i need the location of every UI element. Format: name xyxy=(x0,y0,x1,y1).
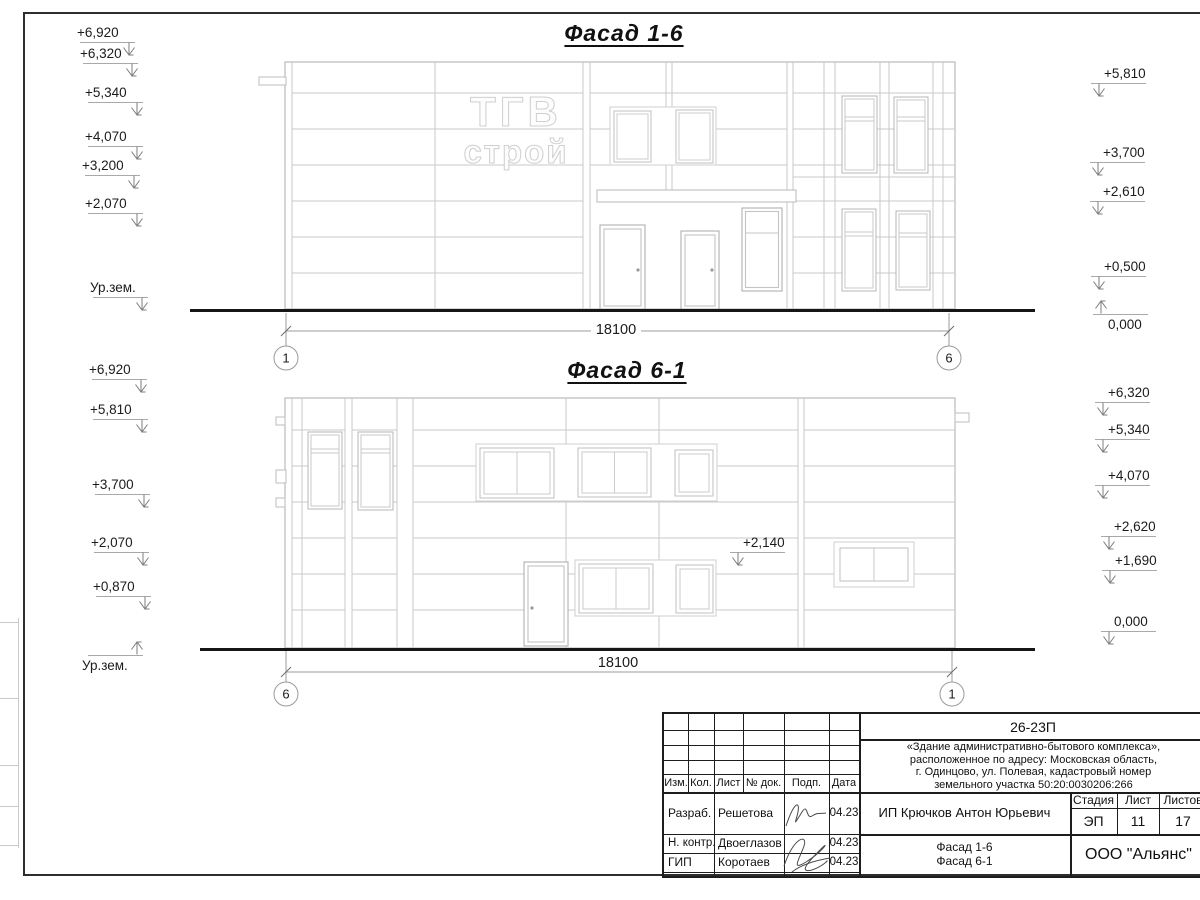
axis-label-right: 1 xyxy=(948,687,955,702)
elevation-leader xyxy=(88,655,143,656)
dimension-label: 18100 xyxy=(598,655,638,671)
axis-label-left: 1 xyxy=(282,351,289,366)
elevation-value: +3,200 xyxy=(82,158,124,173)
elevation-value: Ур.зем. xyxy=(90,280,136,295)
facade-6-1-title: Фасад 6-1 xyxy=(497,357,757,384)
signature-scribble xyxy=(778,832,836,876)
elevation-value: +3,700 xyxy=(1103,145,1145,160)
sign-line-2: строй xyxy=(463,133,568,170)
elevation-value: +5,810 xyxy=(90,402,132,417)
project-description: «Здание административно-бытового комплек… xyxy=(862,741,1200,791)
sign-line-1: ТГВ xyxy=(470,88,562,135)
elevation-value: +2,140 xyxy=(743,535,785,550)
client-name: ИП Крючков Антон Юрьевич xyxy=(859,792,1070,834)
small-window xyxy=(834,542,914,587)
elevation-value: +1,690 xyxy=(1115,553,1157,568)
elevation-value: +6,920 xyxy=(89,362,131,377)
elevation-value: +4,070 xyxy=(85,129,127,144)
drawing-sheet: Фасад 1-6 xyxy=(0,0,1200,900)
elevation-value: +5,810 xyxy=(1104,66,1146,81)
description-line: г. Одинцово, ул. Полевая, кадастровый но… xyxy=(862,766,1200,779)
axis-label-left: 6 xyxy=(282,687,289,702)
elevation-value: +5,340 xyxy=(1108,422,1150,437)
row-role: ГИП xyxy=(668,853,714,872)
sheet-content: Фасад 1-6 Фасад 6-1 xyxy=(859,840,1070,868)
facade-1-6-title: Фасад 1-6 xyxy=(494,20,754,47)
signature-scribble xyxy=(782,794,832,834)
sheet-label: Лист xyxy=(1117,793,1159,808)
entrance-door xyxy=(524,562,568,646)
row-role: Н. контр. xyxy=(668,834,714,853)
row-role: Разраб. xyxy=(668,792,714,834)
content-line: Фасад 1-6 xyxy=(859,840,1070,854)
col-izm: Изм. xyxy=(664,775,688,792)
window-band-lower xyxy=(575,560,716,616)
elevation-value: +6,920 xyxy=(77,25,119,40)
title-block: 26-23П «Здание административно-бытового … xyxy=(662,712,1200,878)
row-name: Коротаев xyxy=(718,853,782,872)
description-line: расположенное по адресу: Московская обла… xyxy=(862,754,1200,767)
axis-bubbles: 6 1 xyxy=(274,682,964,706)
dimension-label: 18100 xyxy=(596,322,636,338)
sheet-number: 11 xyxy=(1117,808,1159,834)
sheets-label: Листов xyxy=(1159,793,1200,808)
elevation-value: +5,340 xyxy=(85,85,127,100)
col-kol: Кол. xyxy=(688,775,714,792)
elevation-value: Ур.зем. xyxy=(82,658,128,673)
window-band-upper xyxy=(476,444,717,501)
company-name: ООО "Альянс" xyxy=(1070,834,1200,876)
facade-1-6-drawing: ТГВ строй xyxy=(180,55,1060,375)
elevation-leader xyxy=(1093,314,1148,315)
building-sign: ТГВ строй xyxy=(463,88,568,170)
elevation-value: +0,500 xyxy=(1104,259,1146,274)
description-line: «Здание административно-бытового комплек… xyxy=(862,741,1200,754)
window-band-upper xyxy=(610,107,716,165)
row-name: Двоеглазов xyxy=(718,834,782,853)
elevation-value: +2,610 xyxy=(1103,184,1145,199)
col-data: Дата xyxy=(829,775,859,792)
description-line: земельного участка 50:20:0030206:266 xyxy=(862,779,1200,792)
facade-6-1-drawing: 18100 6 1 xyxy=(190,390,1060,715)
elevation-value: +3,700 xyxy=(92,477,134,492)
project-code: 26-23П xyxy=(859,717,1200,737)
elevation-value: +0,870 xyxy=(93,579,135,594)
row-name: Решетова xyxy=(718,792,782,834)
elevation-value: +4,070 xyxy=(1108,468,1150,483)
elevation-value: 0,000 xyxy=(1114,614,1148,629)
elevation-value: +6,320 xyxy=(1108,385,1150,400)
elevation-value: +2,070 xyxy=(91,535,133,550)
content-line: Фасад 6-1 xyxy=(859,854,1070,868)
sheets-total: 17 xyxy=(1159,808,1200,834)
canopy xyxy=(597,190,796,202)
row-date: 04.23 xyxy=(829,792,859,834)
stage-label: Стадия xyxy=(1070,793,1117,808)
col-ndok: № док. xyxy=(743,775,784,792)
elevation-value: +6,320 xyxy=(80,46,122,61)
elevation-value: +2,620 xyxy=(1114,519,1156,534)
stage-value: ЭП xyxy=(1070,808,1117,834)
elevation-value: 0,000 xyxy=(1108,317,1142,332)
col-podp: Подп. xyxy=(784,775,829,792)
col-list: Лист xyxy=(714,775,743,792)
axis-label-right: 6 xyxy=(945,351,952,366)
elevation-value: +2,070 xyxy=(85,196,127,211)
